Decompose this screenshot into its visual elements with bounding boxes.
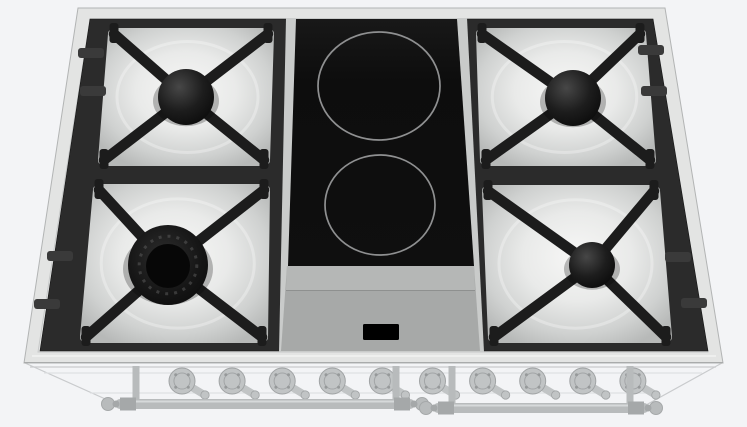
knob-face xyxy=(420,368,446,394)
knob-screw xyxy=(375,386,378,389)
knob-screw xyxy=(487,386,490,389)
rail-joint xyxy=(411,401,418,408)
knob-screw xyxy=(638,373,641,376)
cooktop-render xyxy=(0,0,747,427)
knob-handle-tip xyxy=(501,391,509,399)
knob-screw xyxy=(337,373,340,376)
knob-screw xyxy=(538,386,541,389)
frame-tab xyxy=(641,86,667,96)
knob-screw xyxy=(237,386,240,389)
knob-screw xyxy=(274,373,277,376)
rail-joint xyxy=(431,405,438,412)
burner-cap xyxy=(545,70,601,126)
knob-screw xyxy=(588,373,591,376)
knob-face xyxy=(169,368,195,394)
cooktop-surface xyxy=(24,8,723,363)
knob-screw xyxy=(174,386,177,389)
frame-tab xyxy=(681,298,707,308)
knob-screw xyxy=(387,373,390,376)
grate-corner-post xyxy=(100,149,109,169)
knob-screw xyxy=(224,386,227,389)
grate-corner-post xyxy=(646,149,655,169)
knob-screw xyxy=(425,386,428,389)
knob-handle-tip xyxy=(652,391,660,399)
grate-corner-post xyxy=(662,326,671,346)
frame-tab xyxy=(78,48,104,58)
knob-screw xyxy=(287,373,290,376)
burner-cap xyxy=(569,242,615,288)
knob-face xyxy=(319,368,345,394)
knob-screw xyxy=(525,373,528,376)
knob-screw xyxy=(475,386,478,389)
knob-screw xyxy=(224,373,227,376)
knob-screw xyxy=(325,373,328,376)
knob-screw xyxy=(387,386,390,389)
knob-face xyxy=(269,368,295,394)
knob-handle-tip xyxy=(301,391,309,399)
knob-screw xyxy=(187,386,190,389)
knob-screw xyxy=(638,386,641,389)
grate-corner-post xyxy=(636,23,645,43)
frame-tab xyxy=(638,45,664,55)
knob-face xyxy=(470,368,496,394)
frame-tab xyxy=(665,252,691,262)
grate-corner-post xyxy=(258,326,267,346)
cooktop-render-canvas xyxy=(0,0,747,427)
knob-handle-tip xyxy=(201,391,209,399)
frame-tab xyxy=(80,86,106,96)
control-display xyxy=(363,324,399,340)
grate-corner-post xyxy=(82,326,91,346)
grate-corner-post xyxy=(260,149,269,169)
grate-corner-post xyxy=(264,23,273,43)
control-panel-upper-band xyxy=(286,266,475,290)
knob-screw xyxy=(425,373,428,376)
knob-screw xyxy=(575,386,578,389)
knob-screw xyxy=(525,386,528,389)
gas-burner-rear-left xyxy=(100,23,273,169)
knob-screw xyxy=(487,373,490,376)
frame-tab xyxy=(34,299,60,309)
knob-screw xyxy=(437,373,440,376)
gas-burner-rear-right xyxy=(478,23,655,169)
burner-cap xyxy=(158,69,214,125)
knob-screw xyxy=(325,386,328,389)
display-area xyxy=(363,324,399,340)
grate-corner-post xyxy=(484,180,493,200)
ceramic-glass-panel xyxy=(288,19,474,266)
grate-corner-post xyxy=(478,23,487,43)
knob-screw xyxy=(237,373,240,376)
knob-screw xyxy=(437,386,440,389)
grate-corner-post xyxy=(95,179,104,199)
knob-handle-tip xyxy=(602,391,610,399)
knob-screw xyxy=(375,373,378,376)
knob-face xyxy=(570,368,596,394)
frame-tab xyxy=(47,251,73,261)
grate-corner-post xyxy=(490,326,499,346)
knob-screw xyxy=(538,373,541,376)
wok-burner-center xyxy=(146,244,190,288)
knob-handle-tip xyxy=(552,391,560,399)
grate-corner-post xyxy=(110,23,119,43)
knob-face xyxy=(219,368,245,394)
knob-handle-tip xyxy=(351,391,359,399)
knob-face xyxy=(369,368,395,394)
knob-screw xyxy=(588,386,591,389)
gas-burner-front-right xyxy=(484,180,671,346)
knob-screw xyxy=(287,386,290,389)
knob-screw xyxy=(575,373,578,376)
knob-screw xyxy=(174,373,177,376)
gas-burner-front-left xyxy=(82,179,269,346)
knob-face xyxy=(520,368,546,394)
grate-corner-post xyxy=(650,180,659,200)
rail-joint xyxy=(113,401,120,408)
grate-corner-post xyxy=(260,179,269,199)
grate-corner-post xyxy=(482,149,491,169)
knob-handle-tip xyxy=(251,391,259,399)
knob-screw xyxy=(475,373,478,376)
knob-screw xyxy=(187,373,190,376)
knob-screw xyxy=(274,386,277,389)
knob-screw xyxy=(337,386,340,389)
rail-joint xyxy=(645,405,652,412)
